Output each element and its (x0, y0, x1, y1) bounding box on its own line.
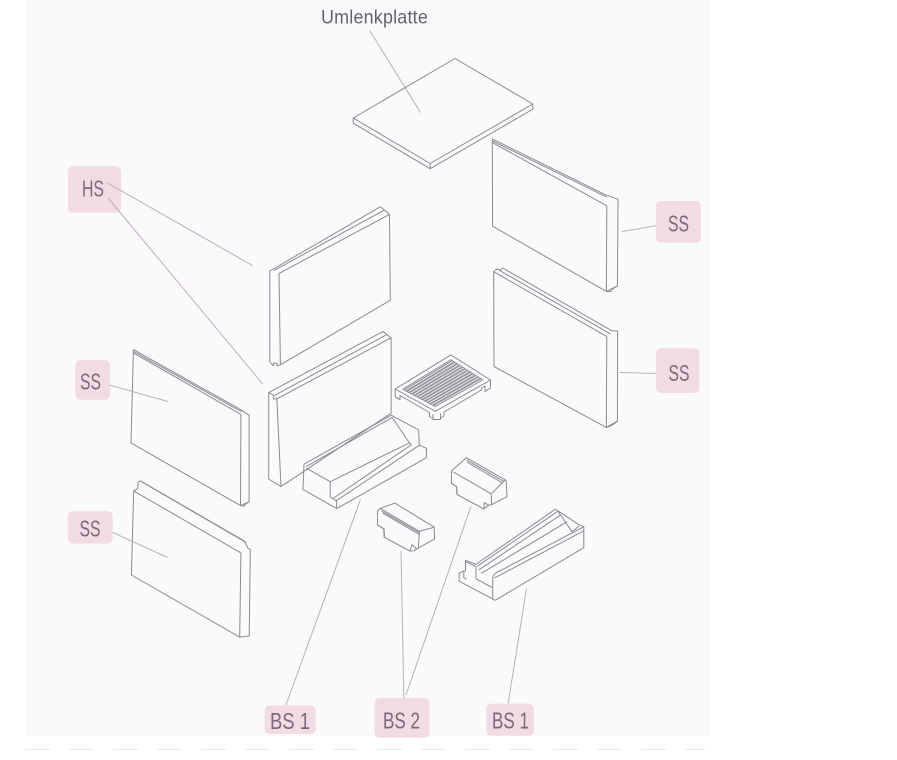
svg-text:SS: SS (80, 516, 101, 542)
svg-text:SS: SS (668, 211, 689, 237)
svg-text:HS: HS (82, 176, 104, 202)
svg-text:SS: SS (669, 360, 690, 386)
svg-text:Umlenkplatte: Umlenkplatte (321, 7, 428, 29)
svg-text:SS: SS (80, 369, 101, 395)
svg-text:BS 1: BS 1 (270, 708, 310, 734)
svg-text:BS 2: BS 2 (383, 708, 420, 734)
svg-text:BS 1: BS 1 (492, 708, 529, 734)
